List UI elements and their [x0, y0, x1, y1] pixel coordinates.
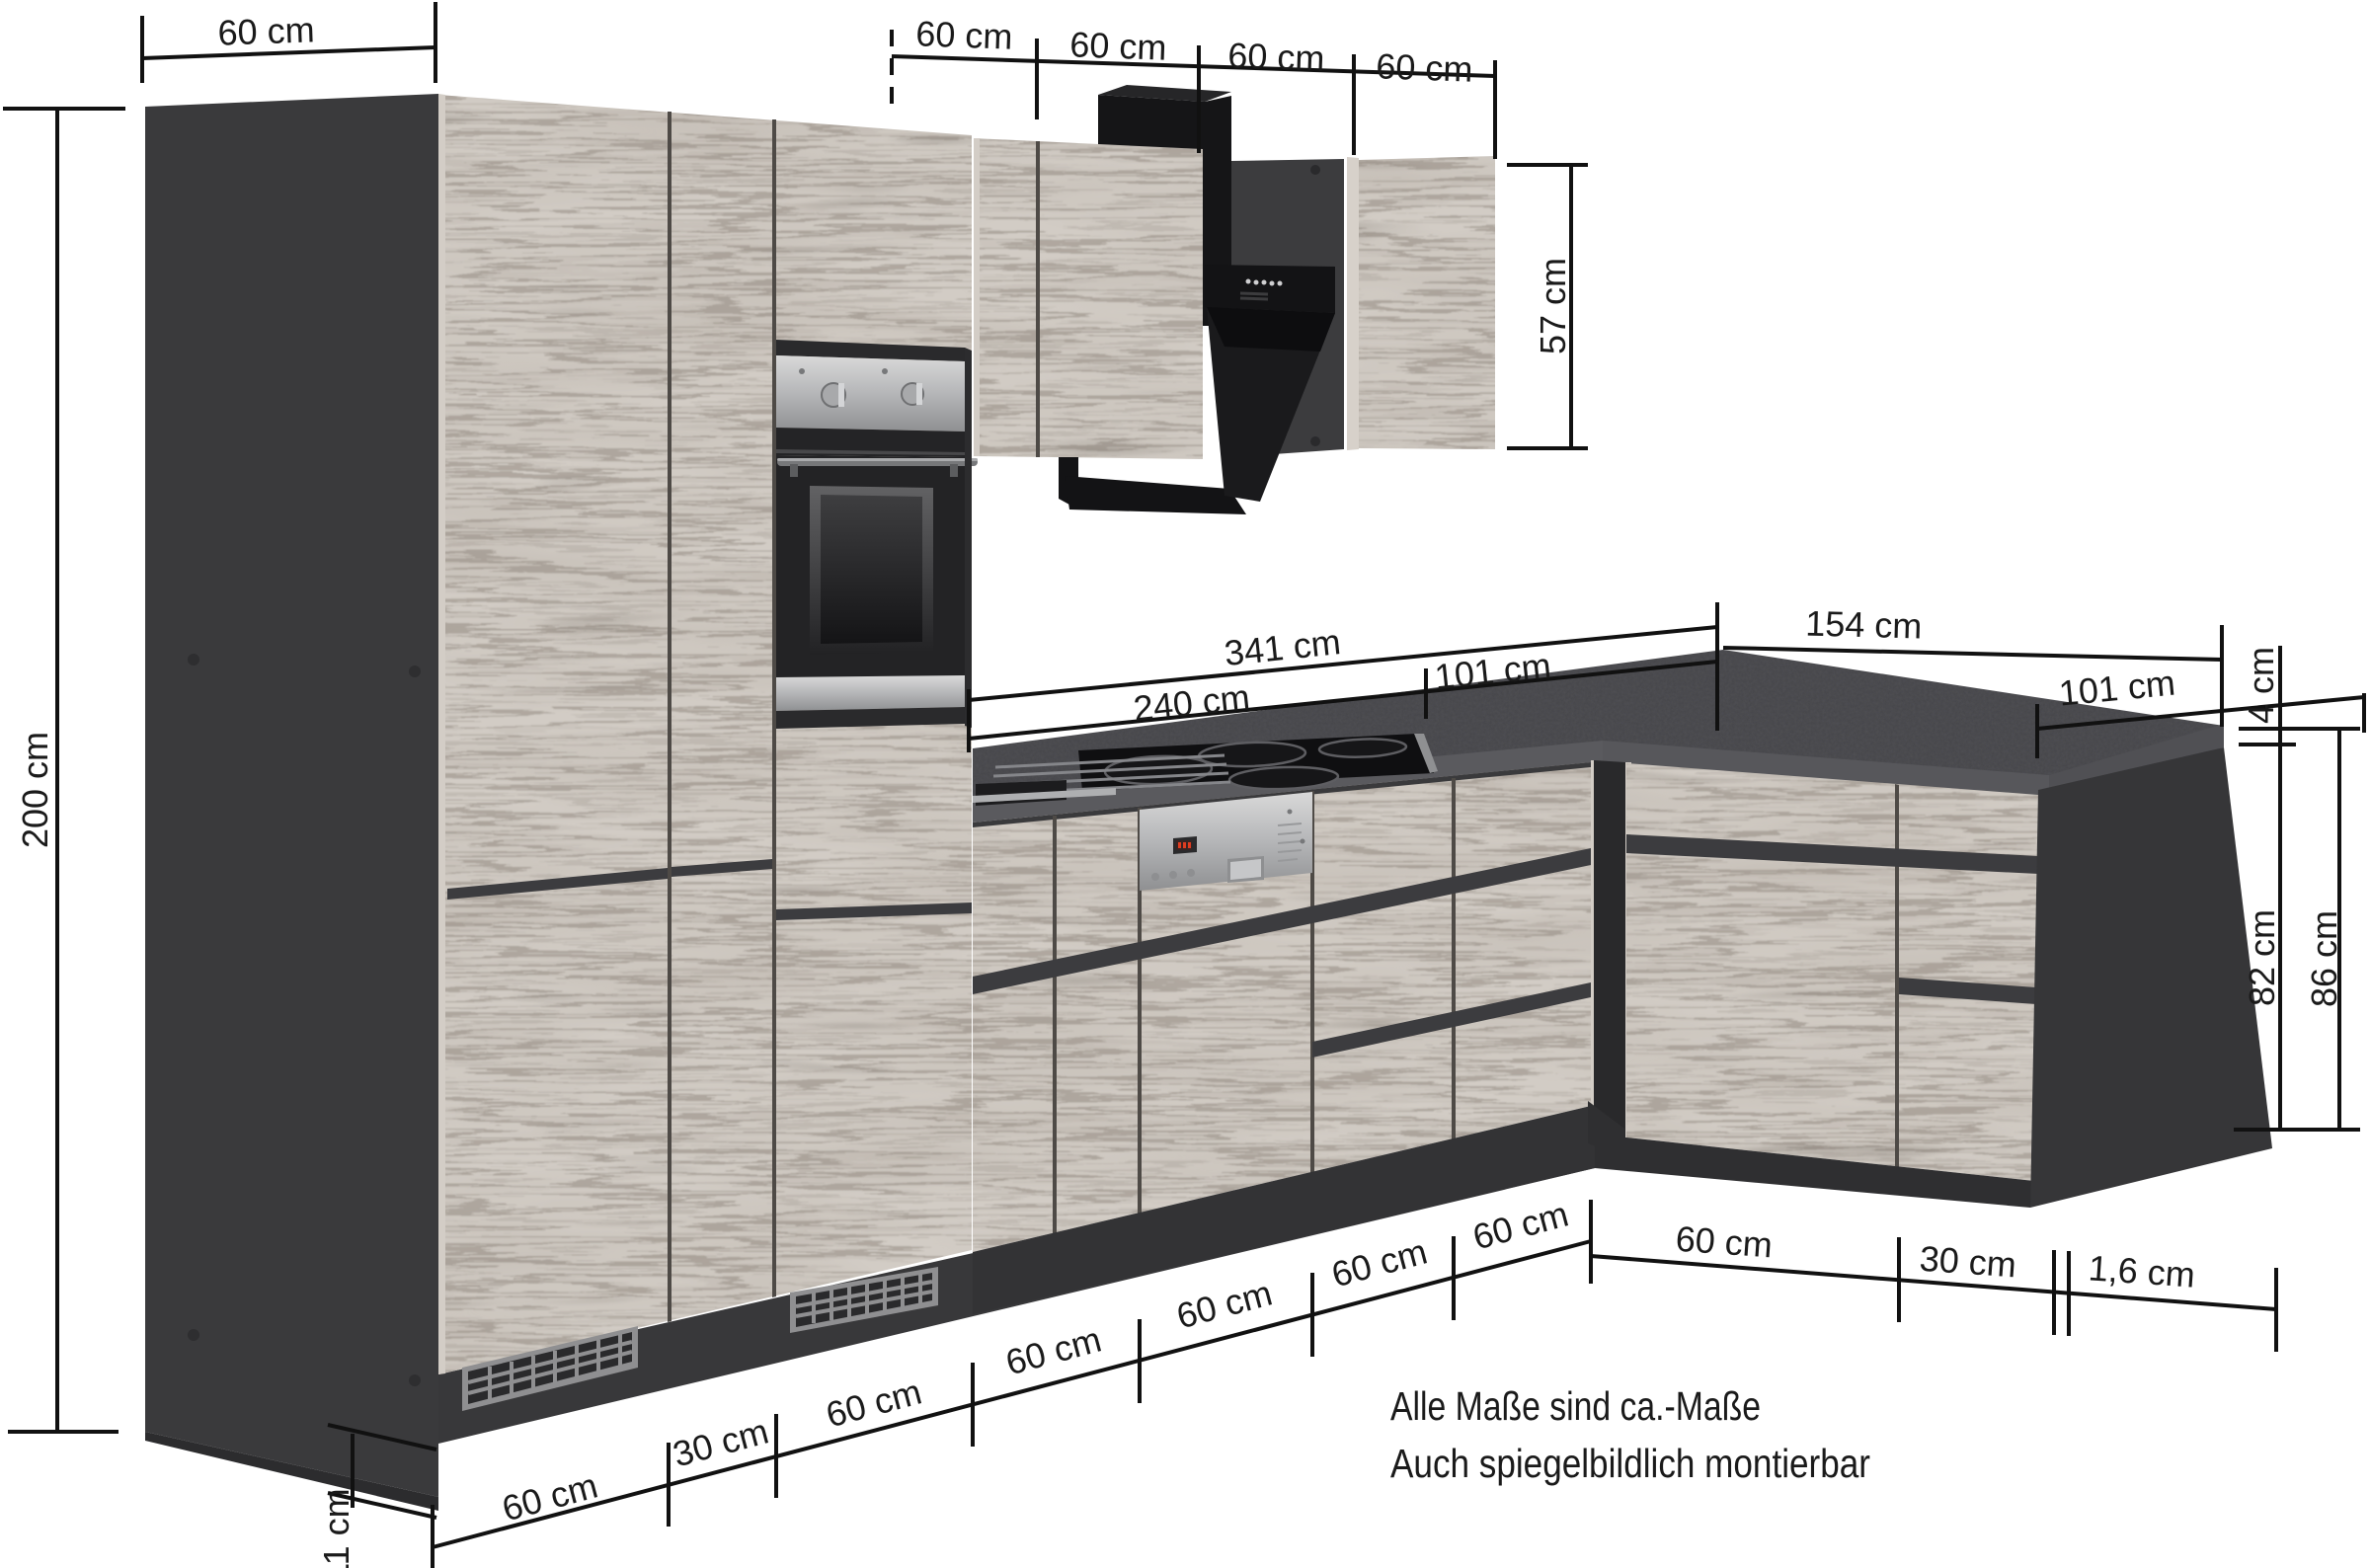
svg-text:200 cm: 200 cm [15, 732, 55, 848]
svg-text:60 cm: 60 cm [915, 13, 1013, 56]
svg-text:Auch spiegelbildlich montierba: Auch spiegelbildlich montierbar [1390, 1441, 1870, 1486]
svg-text:82 cm: 82 cm [2242, 909, 2282, 1006]
svg-text:154 cm: 154 cm [1805, 602, 1923, 646]
svg-text:60 cm: 60 cm [1675, 1218, 1775, 1266]
svg-text:60 cm: 60 cm [1227, 35, 1325, 78]
svg-text:30 cm: 30 cm [1919, 1238, 2018, 1286]
svg-text:1,6 cm: 1,6 cm [2088, 1247, 2197, 1294]
svg-text:60 cm: 60 cm [217, 9, 315, 52]
svg-text:57 cm: 57 cm [1533, 258, 1573, 354]
svg-text:Alle Maße sind ca.-Maße: Alle Maße sind ca.-Maße [1390, 1383, 1761, 1429]
svg-text:86 cm: 86 cm [2304, 910, 2344, 1007]
svg-text:4 cm: 4 cm [2241, 647, 2281, 724]
svg-text:60 cm: 60 cm [1069, 24, 1167, 67]
svg-text:60 cm: 60 cm [1376, 45, 1473, 89]
svg-text:11 cm: 11 cm [316, 1488, 356, 1568]
